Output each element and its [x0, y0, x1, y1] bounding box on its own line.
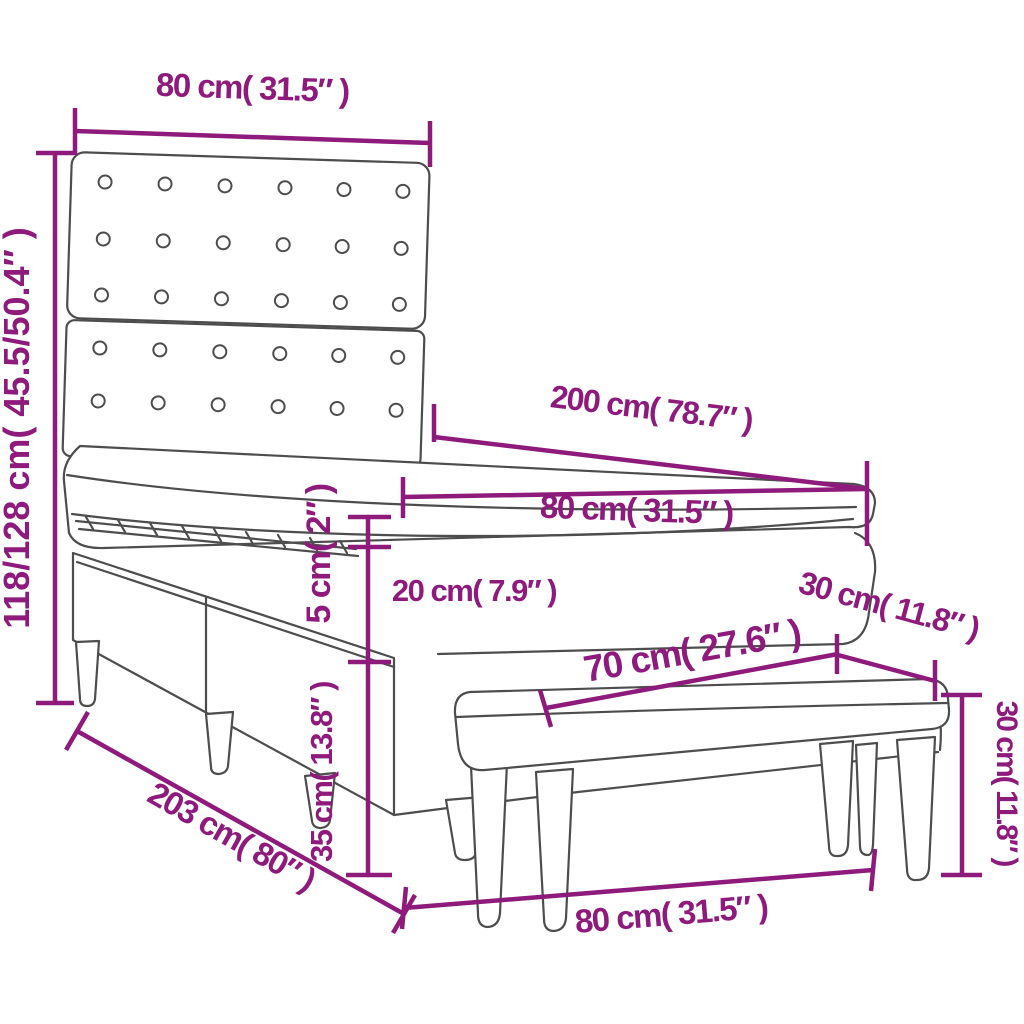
dim-headboard-width: 80 cm( 31.5″ ): [75, 66, 430, 167]
dim-base-height-label: 35 cm( 13.8″ ): [304, 682, 339, 862]
dim-bench-depth-label: 30 cm( 11.8″ ): [795, 564, 984, 647]
dim-bench-height-label: 30 cm( 11.8″ ): [990, 701, 1023, 867]
diagram-canvas: 80 cm( 31.5″ ) 118/128 cm( 45.5/50.4″ ) …: [0, 0, 1024, 1024]
headboard-upper-panel: [67, 152, 430, 329]
mattress: [64, 446, 875, 556]
dim-total-length-label: 203 cm( 80″ ): [142, 774, 322, 898]
bench-leg: [856, 743, 877, 855]
dim-bed-width-label: 80 cm( 31.5″ ): [539, 488, 734, 532]
dim-bed-length-label: 200 cm( 78.7″ ): [549, 378, 755, 438]
dim-bench-length-label: 80 cm( 31.5″ ): [573, 887, 769, 940]
dim-topper-thickness-label: 5 cm( 2″ ): [300, 484, 338, 623]
dim-bench-height: 30 cm( 11.8″ ): [941, 695, 1023, 875]
dim-headboard-height-label: 118/128 cm( 45.5/50.4″ ): [0, 227, 37, 629]
headboard-lower-panel: [62, 320, 424, 467]
dim-headboard-width-label: 80 cm( 31.5″ ): [155, 66, 350, 109]
bench-leg: [820, 741, 853, 856]
dim-bench-length: 80 cm( 31.5″ ): [402, 849, 875, 940]
bench-leg: [897, 737, 935, 880]
dim-bench-top-length-label: 70 cm( 27.6″ ): [581, 611, 804, 689]
headboard: [62, 152, 429, 467]
base-front-face: [73, 553, 394, 815]
dim-mattress-thickness-label: 20 cm( 7.9″ ): [392, 573, 556, 608]
bed-leg: [206, 712, 233, 774]
bench-leg: [536, 769, 573, 931]
bed-leg: [76, 641, 99, 706]
bed-dimension-diagram: 80 cm( 31.5″ ) 118/128 cm( 45.5/50.4″ ) …: [0, 0, 1024, 1024]
